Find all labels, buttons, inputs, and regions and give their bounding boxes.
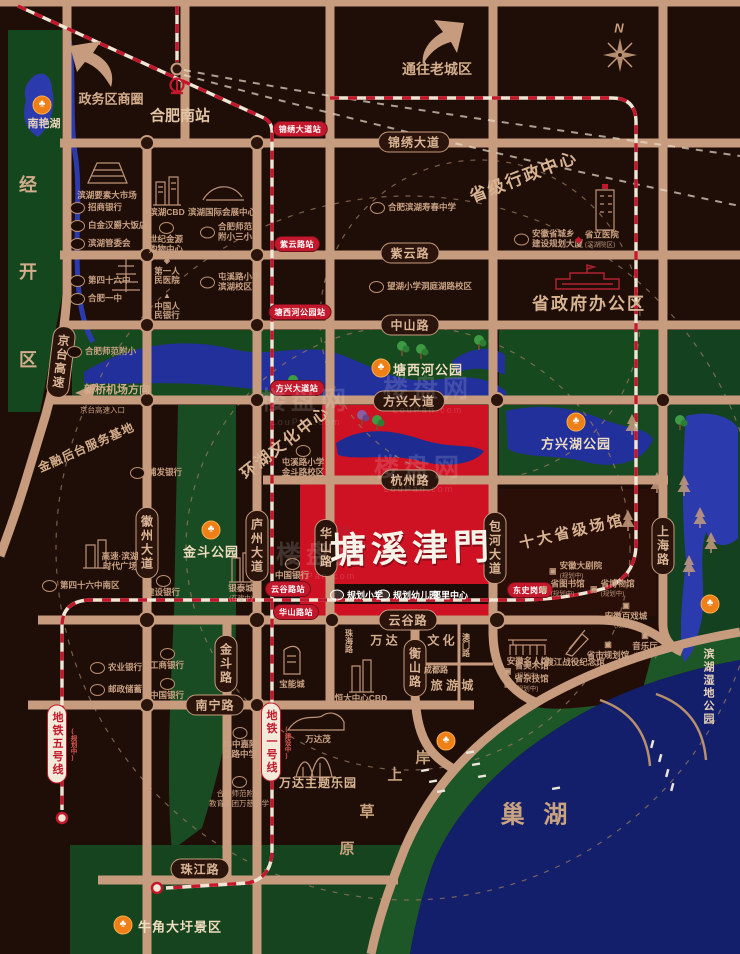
map-text: 上 — [387, 764, 402, 785]
poi-label: 合肥一中 — [70, 293, 122, 305]
map-text: 合肥南站 — [150, 105, 210, 126]
poi-text: 合肥一中 — [88, 294, 122, 304]
oval-icon — [70, 293, 85, 305]
project-facility-label: 邻里中心 — [432, 589, 468, 602]
map-text: 金融后台服务基地 — [35, 418, 137, 476]
metro-line-note: (建设中) — [281, 725, 291, 759]
poi-label: 万达茂 — [305, 735, 331, 745]
poi-label: 建设银行 — [146, 575, 180, 598]
poi-text: 第四十六中 — [88, 276, 131, 286]
poi-label: 安徽省城乡建设规划大厦 — [514, 230, 583, 249]
poi-label: 浦发银行 — [130, 467, 182, 479]
poi-line: 合肥师范附小 — [85, 347, 136, 357]
poi-line: 安徽大剧院 — [560, 562, 603, 572]
poi-label: 合肥师范附小 — [67, 346, 136, 358]
park-icon: ♣ — [437, 732, 456, 751]
oval-icon — [67, 346, 82, 358]
dot-icon: ▣ — [604, 640, 612, 650]
poi-label: 中国银行 — [275, 558, 309, 581]
oval-icon — [70, 275, 85, 287]
road-badge: 南宁路 — [185, 695, 244, 716]
map-text: 区 — [19, 346, 37, 372]
poi-note: (规划中) — [551, 589, 585, 599]
park-icon: ♣ — [114, 916, 133, 935]
facility-icon — [330, 590, 344, 601]
poi-label: ▣省图书馆(规划中) — [540, 580, 585, 599]
poi-text: 滨湖CBD — [149, 208, 184, 218]
poi-text: 音乐厅(规划中) — [632, 642, 658, 661]
poi-text: 高速·滨湖时代广场 — [102, 552, 139, 571]
oval-icon — [370, 202, 385, 214]
dot-icon: ▣ — [549, 566, 557, 576]
park-icon: ♣ — [372, 359, 391, 378]
road-badge: 庐州大道 — [246, 510, 269, 582]
poi-text: 第一人民医院 — [154, 267, 180, 286]
poi-line: 工商银行 — [150, 661, 184, 671]
poi-label: 恒大中心CBD — [335, 694, 387, 704]
poi-label: 第四十六中南区 — [42, 580, 120, 592]
oval-icon — [42, 580, 57, 592]
dot-icon: ▣ — [504, 679, 512, 689]
tri-icon: ▲ — [163, 291, 171, 301]
poi-line: 音乐厅 — [632, 642, 658, 652]
poi-label: 银泰城(在建中) — [228, 584, 254, 603]
poi-label: 屯溪路小学滨湖校区 — [200, 273, 261, 292]
dot-icon: ▣ — [641, 631, 649, 641]
poi-line: 白金汉爵大饭店 — [88, 221, 148, 231]
poi-text: 省图书馆(规划中) — [551, 580, 585, 599]
facility-text: 邻里中心 — [432, 589, 468, 602]
poi-line: 第四十六中 — [88, 276, 131, 286]
poi-label: 京台高速入口 — [80, 405, 125, 415]
poi-label: 望湖小学洞庭湖路校区 — [369, 281, 472, 293]
park-icon: ♣ — [701, 595, 720, 614]
labels-layer: 锦绣大道紫云路中山路方兴大道杭州路云谷路南宁路珠江路徽州大道庐州大道华山路包河大… — [0, 0, 740, 954]
metro-station-badge: 方兴大道站 — [271, 381, 324, 395]
poi-line: 合肥一中 — [88, 294, 122, 304]
poi-label: ▣省杂技馆(规划中) — [504, 675, 549, 694]
poi-label: 48中嘉陵江路中学 — [223, 727, 258, 759]
dot-icon: ▣ — [540, 584, 548, 594]
poi-line: 万达茂 — [305, 735, 331, 745]
poi-text: 屯溪路小学金斗路校区(筹建中) — [282, 458, 325, 487]
metro-station-badge: 塘西河公园站 — [270, 305, 331, 319]
oval-icon — [159, 648, 174, 660]
poi-note: (规划中) — [605, 621, 648, 631]
poi-text: 滨湖管委会 — [88, 239, 131, 249]
road-badge: 徽州大道 — [136, 507, 159, 579]
poi-line: 合肥滨湖寿春中学 — [388, 203, 456, 213]
poi-text: 合肥师范附小三小 — [218, 223, 252, 242]
map-text: 珠海路 — [344, 629, 355, 653]
oval-icon — [70, 220, 85, 232]
map-text: 政务区商圈 — [78, 89, 143, 108]
poi-label: 招商银行 — [70, 202, 122, 214]
poi-text: 招商银行 — [88, 203, 122, 213]
poi-line: 银泰城 — [228, 584, 254, 594]
poi-text: 京台高速入口 — [80, 405, 125, 415]
poi-line: 合肥师范附小 — [209, 789, 269, 799]
poi-text: 第四十六中南区 — [60, 581, 120, 591]
poi-line: 教育集团万慈小学 — [209, 799, 269, 809]
road-badge: 中山路 — [380, 315, 439, 336]
poi-text: 渡江战役纪念馆 — [545, 658, 605, 668]
poi-text: 中国银行 — [275, 571, 309, 581]
map-text: 新桥机场方向 — [84, 381, 150, 397]
poi-line: 恒大中心CBD — [335, 694, 387, 704]
poi-line: 民银行 — [154, 311, 180, 321]
park-icon: ♣ — [202, 521, 221, 540]
poi-label: 宝能城 — [279, 680, 305, 690]
poi-note: (规划中) — [601, 589, 635, 599]
oval-icon — [90, 684, 105, 696]
poi-text: 合肥师范附小 — [85, 347, 136, 357]
poi-text: 省杂技馆(规划中) — [515, 675, 549, 694]
road-badge: 紫云路 — [380, 243, 439, 264]
oval-icon — [233, 727, 248, 739]
map-text: 澳门路 — [461, 633, 472, 657]
project-logo: 塘溪津門 — [329, 518, 494, 574]
map-text: 经 — [19, 171, 37, 197]
poi-line: 建设银行 — [146, 588, 180, 598]
poi-line: 附小三小 — [218, 232, 252, 242]
poi-label: 滨湖要素大市场 — [77, 191, 137, 201]
poi-note: (规划中) — [632, 651, 658, 661]
map-text: 岸 — [415, 747, 430, 768]
poi-text: 合肥师范附小教育集团万慈小学 — [209, 789, 269, 808]
map-text: 省政府办公区 — [532, 290, 646, 315]
oval-icon — [158, 222, 173, 234]
poi-label: 合肥师范附小三小 — [200, 223, 252, 242]
metro-station-badge: 华山路站 — [274, 605, 318, 619]
poi-label: 合肥师范附小教育集团万慈小学 — [209, 776, 269, 808]
dot-icon: ▣ — [590, 584, 598, 594]
oval-icon — [159, 678, 174, 690]
oval-icon — [155, 575, 170, 587]
poi-text: 望湖小学洞庭湖路校区 — [387, 282, 472, 292]
poi-line: 民医院 — [154, 276, 180, 286]
poi-label: ◆省立医院(滨湖院区) — [575, 231, 619, 250]
poi-line: 农业银行 — [108, 663, 142, 673]
poi-line: 招商银行 — [88, 203, 122, 213]
park-label: 塘西河公园 — [393, 360, 463, 379]
poi-label: 工商银行 — [150, 648, 184, 671]
road-badge: 京台高速 — [45, 325, 77, 399]
oval-icon — [295, 445, 310, 457]
poi-text: 万达茂 — [305, 735, 331, 745]
poi-line: 滨湖要素大市场 — [77, 191, 137, 201]
poi-text: 安徽百戏城(规划中) — [605, 612, 648, 631]
poi-line: 安徽百戏城 — [605, 612, 648, 622]
poi-label: ▣省博物馆(规划中) — [590, 580, 635, 599]
poi-line: 中国银行 — [150, 691, 184, 701]
oval-icon — [130, 467, 145, 479]
park-label: 滨湖湿地公园 — [700, 648, 716, 726]
poi-line: 省博物馆 — [601, 580, 635, 590]
poi-line: 省美术馆 — [515, 662, 549, 672]
poi-line: 时代广场 — [102, 562, 139, 572]
map-text: 文 化 — [427, 632, 454, 649]
map-text: N — [614, 21, 623, 36]
poi-text: 滨湖要素大市场 — [77, 191, 137, 201]
oval-icon — [70, 238, 85, 250]
road-badge: 上海路 — [652, 517, 675, 575]
project-facility-label: 规划幼儿园 — [376, 589, 438, 602]
dot-icon: ▣ — [622, 601, 630, 611]
poi-text: 白金汉爵大饭店 — [88, 221, 148, 231]
poi-text: 农业银行 — [108, 663, 142, 673]
poi-text: 银泰城(在建中) — [228, 584, 254, 603]
poi-line: 滨湖国际会展中心 — [188, 208, 256, 218]
poi-line: 望湖小学洞庭湖路校区 — [387, 282, 472, 292]
poi-label: 滨湖CBD — [149, 208, 184, 218]
poi-label: ▲中国人民银行 — [154, 291, 180, 321]
oval-icon — [514, 233, 529, 245]
poi-text: 邮政储蓄 — [108, 685, 142, 695]
poi-label: 滨湖国际会展中心 — [188, 208, 256, 218]
poi-line: 江路中学 — [223, 750, 258, 760]
park-label: 南艳湖 — [28, 115, 61, 131]
road-badge: 锦绣大道 — [378, 132, 450, 153]
poi-text: 工商银行 — [150, 661, 184, 671]
oval-icon — [369, 281, 384, 293]
poi-text: 宝能城 — [279, 680, 305, 690]
poi-label: 第四十六中 — [70, 275, 131, 287]
poi-label: 邮政储蓄 — [90, 684, 142, 696]
poi-text: 恒大中心CBD — [335, 694, 387, 704]
poi-text: 建设银行 — [146, 588, 180, 598]
park-label: 方兴湖公园 — [541, 434, 611, 453]
poi-line: 万达主题乐园 — [279, 779, 357, 789]
oval-icon — [284, 558, 299, 570]
map-text: 成都路 — [424, 665, 448, 676]
road-badge: 金斗路 — [215, 635, 238, 693]
poi-label: 农业银行 — [90, 662, 142, 674]
oval-icon — [200, 226, 215, 238]
map-text: 巢 湖 — [501, 795, 574, 830]
diamond-icon: ◈ — [164, 256, 170, 266]
park-icon: ♣ — [33, 96, 52, 115]
poi-text: 中国人民银行 — [154, 302, 180, 321]
oval-icon — [90, 662, 105, 674]
road-badge: 杭州路 — [380, 470, 439, 491]
poi-line: 金斗路校区 — [282, 468, 325, 478]
poi-label: ▣安徽百戏城(规划中) — [605, 601, 648, 631]
poi-note: (在建中) — [228, 594, 254, 604]
map-text: 万 达 — [370, 632, 397, 649]
poi-text: 省博物馆(规划中) — [601, 580, 635, 599]
park-label: 牛角大圩景区 — [138, 917, 222, 936]
poi-line: 中国银行 — [275, 571, 309, 581]
poi-label: 白金汉爵大饭店 — [70, 220, 148, 232]
poi-label: 高速·滨湖时代广场 — [102, 552, 139, 571]
poi-line: 第四十六中南区 — [60, 581, 120, 591]
poi-label: 世纪金源购物中心 — [149, 222, 183, 254]
map-text: 省级行政中心 — [465, 143, 580, 207]
poi-line: 省立医院 — [585, 231, 619, 241]
poi-line: 购物中心 — [149, 245, 183, 255]
oval-icon — [232, 776, 247, 788]
poi-line: 省图书馆 — [551, 580, 585, 590]
poi-note: (筹建中) — [282, 477, 325, 487]
poi-line: 省杂技馆 — [515, 675, 549, 685]
metro-line-badge: 地铁一号线(建设中) — [261, 703, 281, 782]
poi-text: 滨湖国际会展中心 — [188, 208, 256, 218]
road-badge: 方兴大道 — [373, 391, 445, 412]
poi-line: 滨湖管委会 — [88, 239, 131, 249]
poi-text: 万达主题乐园 — [279, 779, 357, 789]
poi-line: 滨湖校区 — [218, 282, 261, 292]
poi-label: 中国银行 — [150, 678, 184, 701]
poi-label: 万达主题乐园 — [279, 779, 357, 789]
map-text: 草 — [359, 801, 374, 822]
poi-text: 省立医院(滨湖院区) — [585, 231, 619, 250]
poi-text: 世纪金源购物中心 — [149, 235, 183, 254]
map-text: 十大省级场馆 — [517, 509, 627, 554]
oval-icon — [70, 202, 85, 214]
poi-text: 屯溪路小学滨湖校区 — [218, 273, 261, 292]
poi-label: ▣音乐厅(规划中) — [632, 631, 658, 661]
map-text: 开 — [19, 258, 37, 284]
poi-note: (规划中) — [515, 684, 549, 694]
reddia-icon: ◆ — [575, 235, 582, 245]
map-text: 旅 游 城 — [431, 677, 474, 694]
poi-line: 邮政储蓄 — [108, 685, 142, 695]
poi-text: 48中嘉陵江路中学 — [223, 740, 258, 759]
poi-label: 合肥滨湖寿春中学 — [370, 202, 456, 214]
metro-station-badge: 锦绣大道站 — [274, 122, 327, 136]
location-map: 锦绣大道紫云路中山路方兴大道杭州路云谷路南宁路珠江路徽州大道庐州大道华山路包河大… — [0, 0, 740, 954]
oval-icon — [200, 276, 215, 288]
road-badge: 珠江路 — [170, 859, 229, 880]
poi-note: (滨湖院区) — [585, 240, 619, 250]
poi-text: 浦发银行 — [148, 468, 182, 478]
metro-line-badge: 地铁五号线(规划中) — [47, 705, 67, 784]
road-badge: 云谷路 — [378, 610, 437, 631]
poi-line: 浦发银行 — [148, 468, 182, 478]
poi-line: 滨湖CBD — [149, 208, 184, 218]
facility-icon — [376, 590, 390, 601]
map-text: 通往老城区 — [402, 59, 472, 79]
poi-line: 渡江战役纪念馆 — [545, 658, 605, 668]
map-text: 原 — [339, 838, 354, 859]
poi-label: 滨湖管委会 — [70, 238, 131, 250]
poi-text: 合肥滨湖寿春中学 — [388, 203, 456, 213]
metro-line-note: (规划中) — [67, 727, 77, 761]
poi-label: ◈第一人民医院 — [154, 256, 180, 286]
poi-line: 宝能城 — [279, 680, 305, 690]
park-label: 金斗公园 — [183, 542, 239, 561]
poi-label: 渡江战役纪念馆 — [545, 658, 605, 668]
poi-text: 中国银行 — [150, 691, 184, 701]
metro-station-badge: 紫云路站 — [275, 237, 319, 251]
poi-line: 京台高速入口 — [80, 405, 125, 415]
metro-station-badge: 云谷路站 — [266, 582, 310, 596]
park-icon: ♣ — [567, 413, 586, 432]
